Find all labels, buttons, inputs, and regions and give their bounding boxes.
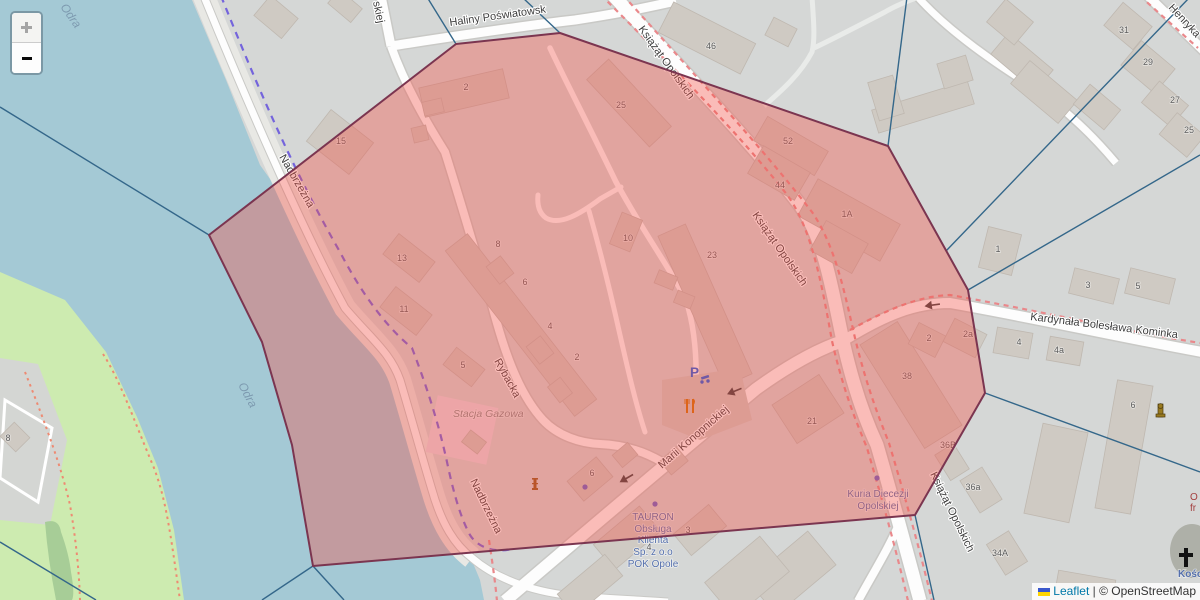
svg-text:8: 8 <box>5 433 10 443</box>
svg-text:1: 1 <box>995 244 1000 254</box>
svg-text:skiej: skiej <box>370 0 386 24</box>
svg-text:Sp. z o.o: Sp. z o.o <box>633 547 673 558</box>
svg-text:fr: fr <box>1190 503 1197 514</box>
svg-text:Henryka: Henryka <box>1166 2 1200 41</box>
svg-text:O: O <box>1190 492 1198 503</box>
svg-text:31: 31 <box>1119 25 1129 35</box>
svg-text:3: 3 <box>1085 280 1090 290</box>
svg-text:6: 6 <box>1130 400 1135 410</box>
svg-text:Haliny Poświatowsk: Haliny Poświatowsk <box>449 3 547 28</box>
svg-text:Kośció: Kośció <box>1178 569 1200 580</box>
svg-text:46: 46 <box>706 41 716 51</box>
svg-text:25: 25 <box>1184 125 1194 135</box>
svg-text:29: 29 <box>1143 57 1153 67</box>
svg-text:4: 4 <box>1016 337 1021 347</box>
svg-text:Kardynała Bolesława Kominka: Kardynała Bolesława Kominka <box>1030 311 1180 341</box>
svg-text:5: 5 <box>1135 281 1140 291</box>
svg-text:34A: 34A <box>992 548 1008 558</box>
svg-text:36a: 36a <box>965 482 980 492</box>
svg-text:27: 27 <box>1170 95 1180 105</box>
svg-text:Odra: Odra <box>58 1 85 31</box>
svg-text:Odra: Odra <box>235 380 260 410</box>
svg-text:POK Opole: POK Opole <box>628 559 679 570</box>
svg-text:4a: 4a <box>1054 345 1064 355</box>
